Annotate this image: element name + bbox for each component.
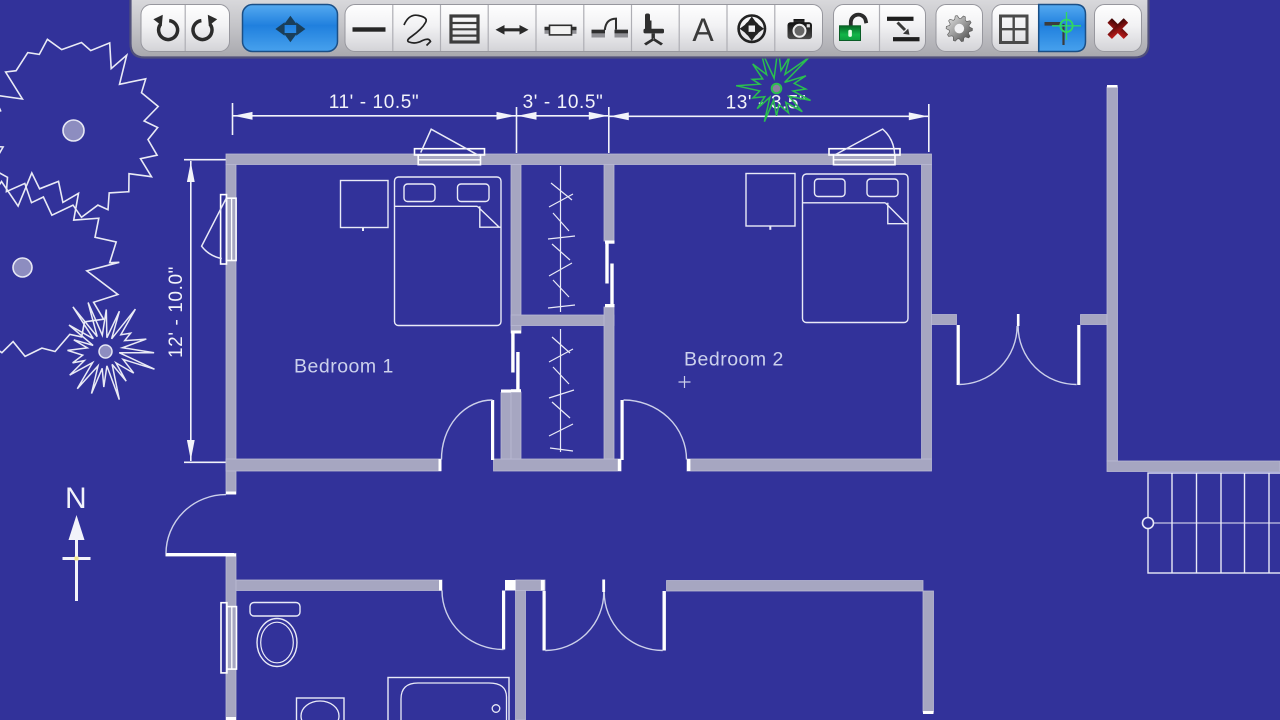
svg-text:3' - 10.5": 3' - 10.5" [523,92,604,113]
svg-text:Bedroom 2: Bedroom 2 [684,349,784,371]
svg-text:11' - 10.5": 11' - 10.5" [329,92,420,113]
svg-text:N: N [65,482,87,515]
svg-text:A: A [692,12,714,48]
svg-text:12' - 10.0": 12' - 10.0" [166,266,187,358]
svg-text:Bedroom 1: Bedroom 1 [294,356,394,378]
